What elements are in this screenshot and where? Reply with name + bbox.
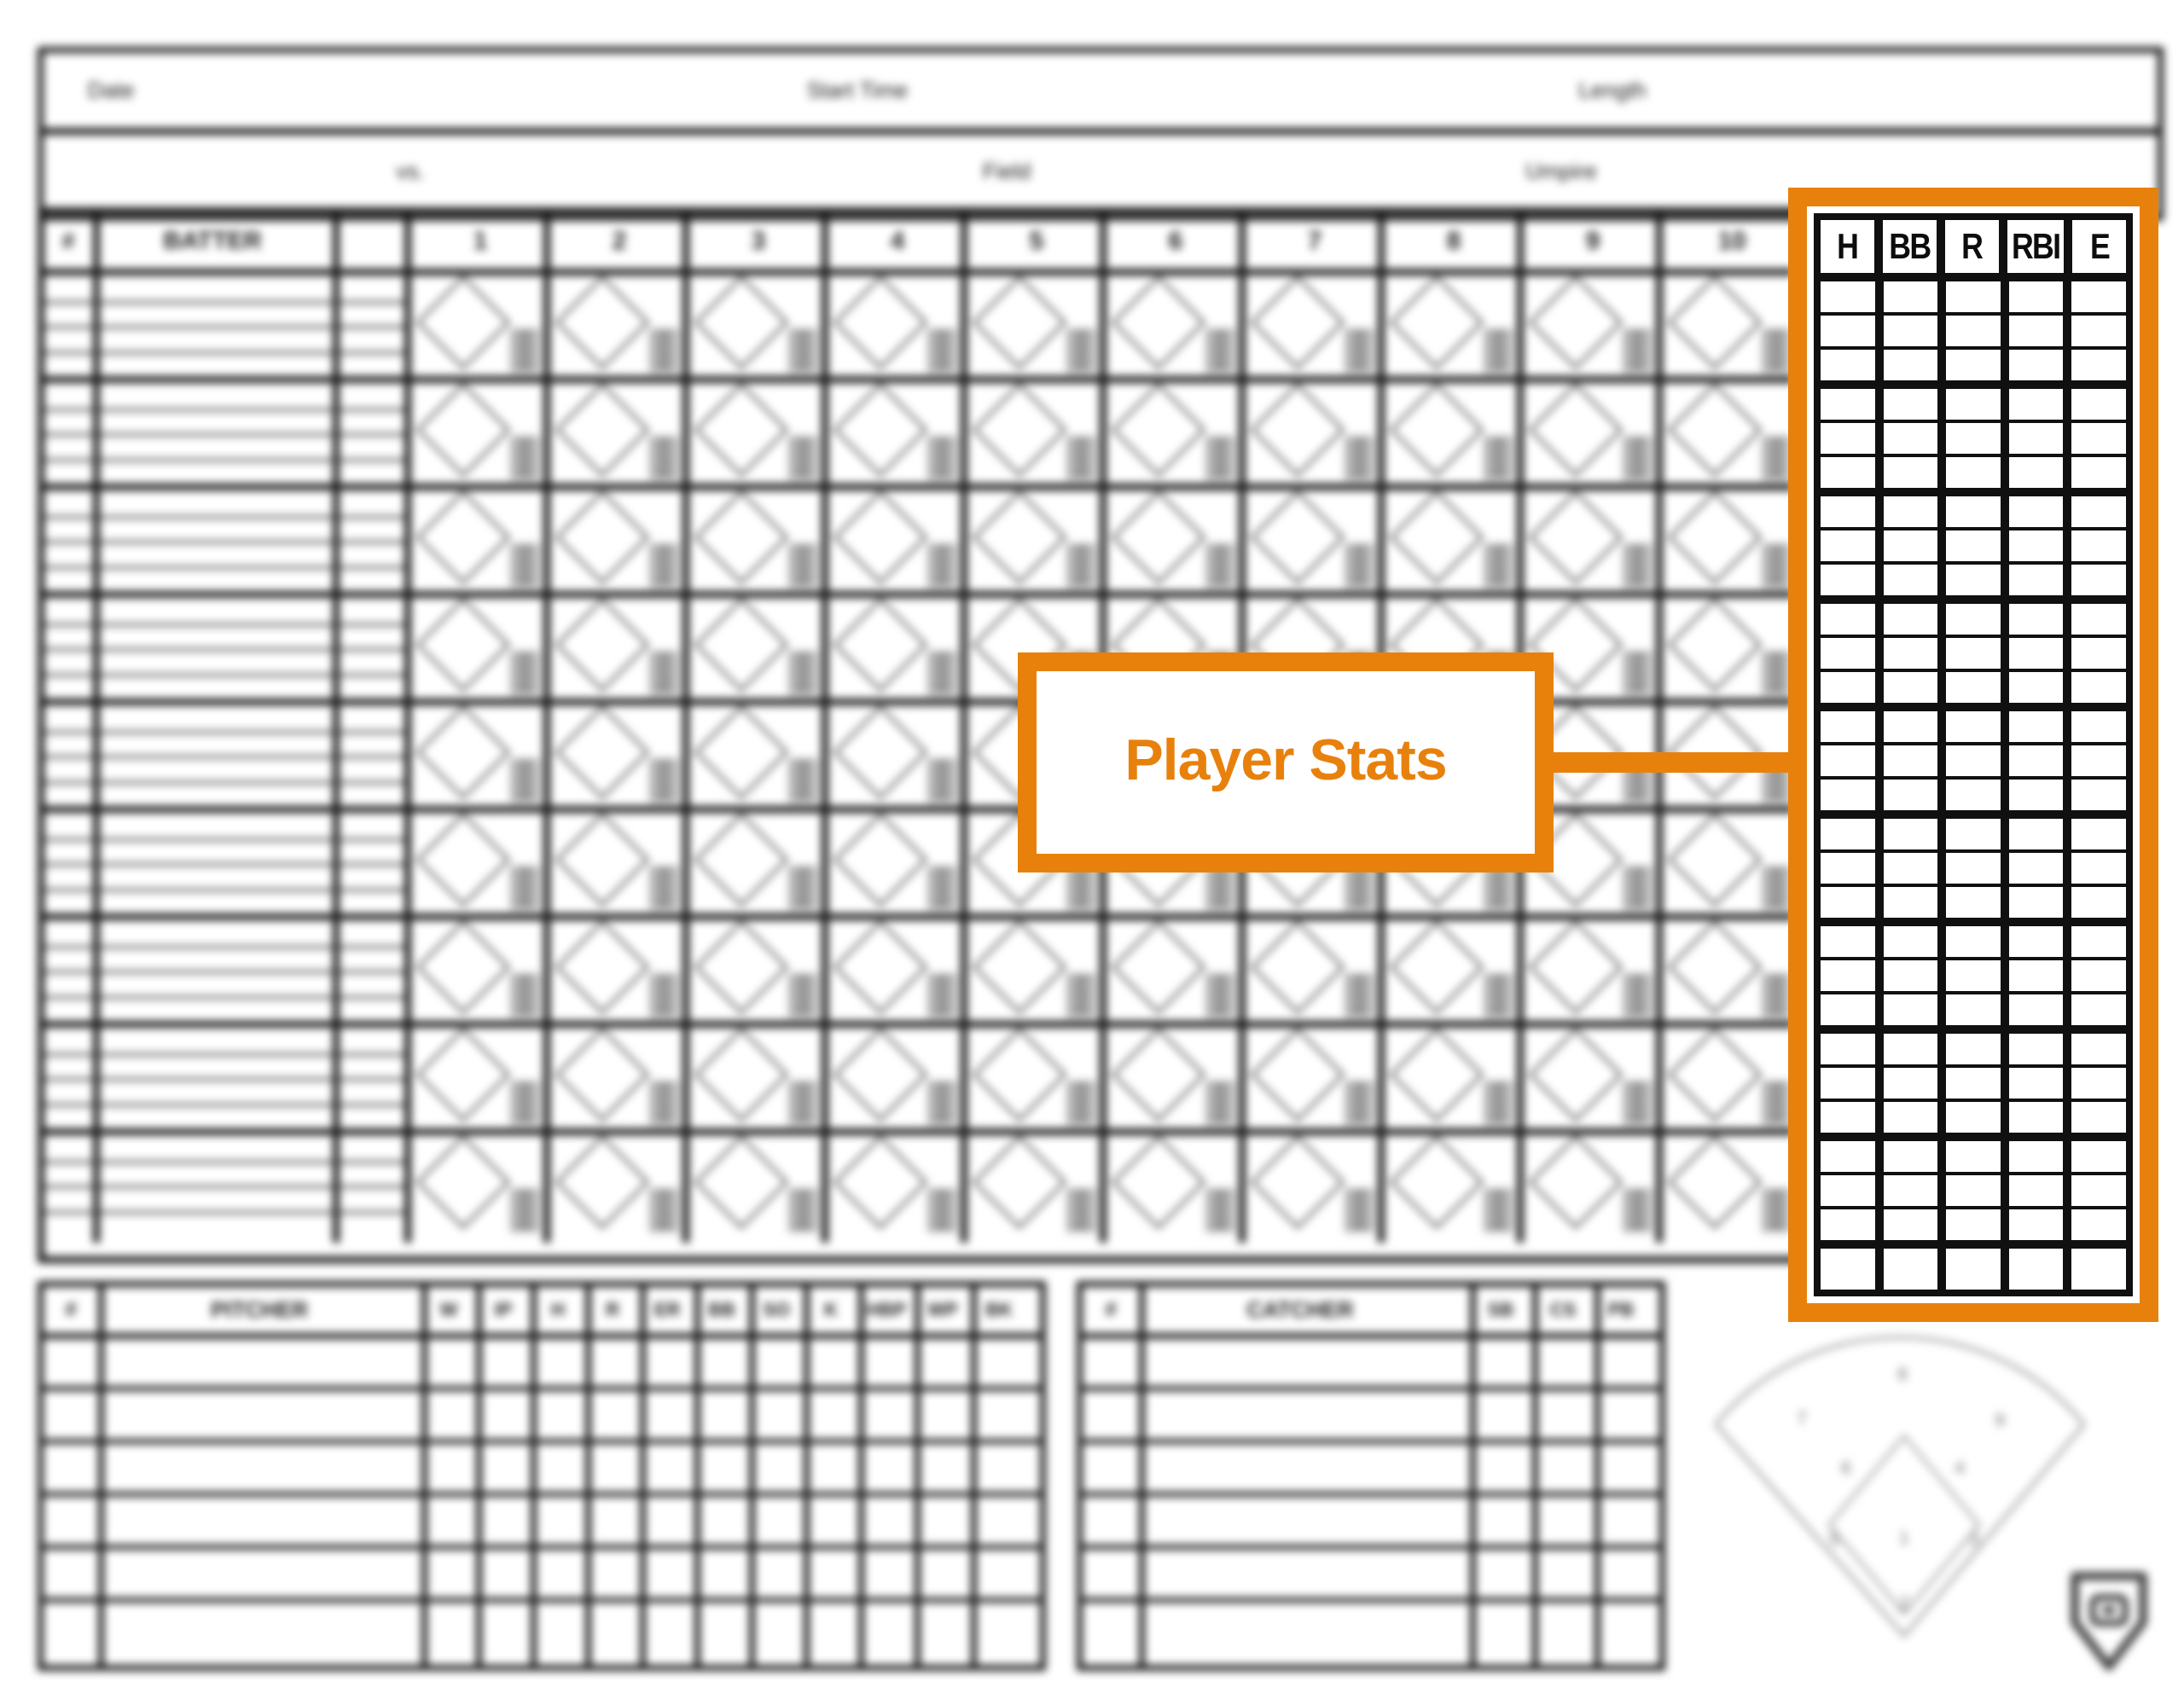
- stats-cell-BB: [1884, 565, 1938, 595]
- player-stats-panel: HBBRRBIE: [1807, 206, 2140, 1303]
- stats-row: [1821, 780, 2126, 810]
- stats-cell-E: [2071, 1249, 2126, 1290]
- stats-cell-BB: [1884, 672, 1938, 703]
- stats-row: [1821, 389, 2126, 420]
- stats-cell-E: [2071, 389, 2126, 420]
- stats-cell-BB: [1884, 711, 1938, 742]
- stats-cell-R: [1946, 604, 2001, 635]
- stats-cell-BB: [1884, 604, 1938, 635]
- stats-cell-H: [1821, 780, 1875, 810]
- stats-cell-RBI: [2009, 994, 2064, 1025]
- stats-cell-H: [1821, 819, 1875, 849]
- stats-row: [1821, 1209, 2126, 1240]
- stats-cell-R: [1946, 457, 2001, 488]
- callout-connector-line: [1548, 752, 1790, 773]
- stats-header-row: HBBRRBIE: [1821, 220, 2126, 273]
- stats-cell-H: [1821, 565, 1875, 595]
- stats-cell-BB: [1884, 960, 1938, 991]
- stats-cell-R: [1946, 672, 2001, 703]
- stats-cell-E: [2071, 994, 2126, 1025]
- stats-cell-H: [1821, 316, 1875, 346]
- stats-cell-R: [1946, 638, 2001, 669]
- stats-col-label: H: [1837, 226, 1857, 267]
- stats-cell-BB: [1884, 1034, 1938, 1064]
- stats-cell-H: [1821, 457, 1875, 488]
- stats-col-label: BB: [1889, 226, 1930, 267]
- stats-cell-BB: [1884, 1249, 1938, 1290]
- stats-cell-H: [1821, 711, 1875, 742]
- stats-cell-E: [2071, 1141, 2126, 1172]
- stats-cell-BB: [1884, 994, 1938, 1025]
- stats-cell-RBI: [2009, 672, 2064, 703]
- stats-cell-RBI: [2009, 926, 2064, 957]
- stats-cell-R: [1946, 1034, 2001, 1064]
- stats-header-BB: BB: [1883, 220, 1937, 273]
- stats-cell-E: [2071, 1209, 2126, 1240]
- stats-cell-R: [1946, 316, 2001, 346]
- stats-cell-BB: [1884, 530, 1938, 561]
- stats-cell-BB: [1884, 1141, 1938, 1172]
- stats-cell-RBI: [2009, 316, 2064, 346]
- stats-cell-RBI: [2009, 960, 2064, 991]
- stats-row: [1821, 423, 2126, 454]
- stats-row: [1821, 819, 2126, 849]
- stats-cell-BB: [1884, 745, 1938, 776]
- stats-cell-BB: [1884, 926, 1938, 957]
- stats-header-RBI: RBI: [2007, 220, 2064, 273]
- stats-cell-E: [2071, 745, 2126, 776]
- stats-row: [1821, 604, 2126, 635]
- stats-row: [1821, 1102, 2126, 1133]
- stats-header-R: R: [1945, 220, 1999, 273]
- stats-cell-R: [1946, 1209, 2001, 1240]
- stats-cell-H: [1821, 1068, 1875, 1099]
- stats-row: [1821, 853, 2126, 884]
- stats-cell-RBI: [2009, 745, 2064, 776]
- stats-cell-H: [1821, 281, 1875, 312]
- stats-cell-E: [2071, 1175, 2126, 1206]
- stats-header-H: H: [1821, 220, 1874, 273]
- stats-cell-E: [2071, 565, 2126, 595]
- stats-cell-RBI: [2009, 1209, 2064, 1240]
- stats-row: [1821, 672, 2126, 703]
- stats-cell-RBI: [2009, 711, 2064, 742]
- stats-cell-H: [1821, 496, 1875, 527]
- stats-cell-R: [1946, 1249, 2001, 1290]
- stats-cell-RBI: [2009, 638, 2064, 669]
- stats-cell-R: [1946, 530, 2001, 561]
- stats-cell-RBI: [2009, 1034, 2064, 1064]
- stats-cell-E: [2071, 423, 2126, 454]
- stats-cell-R: [1946, 1175, 2001, 1206]
- stats-cell-BB: [1884, 887, 1938, 918]
- stats-cell-RBI: [2009, 887, 2064, 918]
- stats-cell-R: [1946, 1141, 2001, 1172]
- stats-row: [1821, 316, 2126, 346]
- stats-cell-H: [1821, 1141, 1875, 1172]
- stats-cell-R: [1946, 350, 2001, 380]
- stats-cell-E: [2071, 711, 2126, 742]
- stats-cell-H: [1821, 994, 1875, 1025]
- stats-cell-R: [1946, 389, 2001, 420]
- stats-cell-RBI: [2009, 780, 2064, 810]
- stats-row: [1821, 350, 2126, 380]
- stats-cell-BB: [1884, 316, 1938, 346]
- stats-cell-RBI: [2009, 853, 2064, 884]
- stats-cell-BB: [1884, 457, 1938, 488]
- stats-cell-BB: [1884, 281, 1938, 312]
- stats-row: [1821, 711, 2126, 742]
- stats-cell-RBI: [2009, 565, 2064, 595]
- stats-cell-H: [1821, 1249, 1875, 1290]
- stats-row: [1821, 1068, 2126, 1099]
- stats-cell-BB: [1884, 1175, 1938, 1206]
- stats-cell-E: [2071, 638, 2126, 669]
- stats-cell-BB: [1884, 638, 1938, 669]
- stats-cell-E: [2071, 780, 2126, 810]
- stats-cell-R: [1946, 960, 2001, 991]
- stats-cell-H: [1821, 1209, 1875, 1240]
- stats-cell-RBI: [2009, 457, 2064, 488]
- stats-cell-E: [2071, 350, 2126, 380]
- stats-cell-H: [1821, 1175, 1875, 1206]
- stats-cell-E: [2071, 887, 2126, 918]
- stats-cell-H: [1821, 389, 1875, 420]
- stats-cell-E: [2071, 853, 2126, 884]
- stats-col-label: R: [1961, 226, 1982, 267]
- stats-cell-H: [1821, 960, 1875, 991]
- annotation-overlay: HBBRRBIE Player Stats: [0, 0, 2184, 1687]
- stats-cell-E: [2071, 496, 2126, 527]
- stats-row: [1821, 638, 2126, 669]
- stats-cell-R: [1946, 1068, 2001, 1099]
- stats-cell-R: [1946, 887, 2001, 918]
- stats-row: [1821, 1141, 2126, 1172]
- stats-cell-BB: [1884, 496, 1938, 527]
- stats-cell-H: [1821, 350, 1875, 380]
- stats-cell-R: [1946, 565, 2001, 595]
- stats-cell-BB: [1884, 1209, 1938, 1240]
- stats-cell-E: [2071, 1068, 2126, 1099]
- stats-cell-H: [1821, 638, 1875, 669]
- stats-cell-E: [2071, 1102, 2126, 1133]
- stats-cell-E: [2071, 604, 2126, 635]
- stats-cell-BB: [1884, 819, 1938, 849]
- stats-cell-H: [1821, 745, 1875, 776]
- stats-row: [1821, 565, 2126, 595]
- stats-cell-E: [2071, 1034, 2126, 1064]
- stats-totals-row: [1821, 1249, 2126, 1290]
- stats-cell-R: [1946, 496, 2001, 527]
- stats-row: [1821, 1175, 2126, 1206]
- stats-cell-BB: [1884, 1068, 1938, 1099]
- stats-row: [1821, 1034, 2126, 1064]
- stats-row: [1821, 745, 2126, 776]
- player-stats-callout: Player Stats: [1018, 652, 1554, 872]
- stats-cell-E: [2071, 457, 2126, 488]
- stats-cell-H: [1821, 604, 1875, 635]
- stats-cell-H: [1821, 530, 1875, 561]
- stats-cell-RBI: [2009, 423, 2064, 454]
- player-stats-table: HBBRRBIE: [1814, 213, 2133, 1296]
- stats-cell-RBI: [2009, 530, 2064, 561]
- stats-cell-R: [1946, 994, 2001, 1025]
- stats-cell-R: [1946, 281, 2001, 312]
- stats-cell-H: [1821, 423, 1875, 454]
- stats-cell-H: [1821, 926, 1875, 957]
- scoresheet-page: Date Start Time Length vs. Field Umpire …: [0, 0, 2184, 1687]
- stats-cell-H: [1821, 672, 1875, 703]
- stats-row: [1821, 457, 2126, 488]
- stats-cell-RBI: [2009, 1249, 2064, 1290]
- stats-cell-RBI: [2009, 1141, 2064, 1172]
- stats-cell-E: [2071, 530, 2126, 561]
- stats-cell-BB: [1884, 389, 1938, 420]
- player-stats-highlight-frame: HBBRRBIE: [1788, 188, 2158, 1322]
- stats-cell-RBI: [2009, 819, 2064, 849]
- stats-cell-E: [2071, 960, 2126, 991]
- stats-cell-R: [1946, 423, 2001, 454]
- stats-cell-RBI: [2009, 604, 2064, 635]
- stats-cell-E: [2071, 926, 2126, 957]
- stats-cell-E: [2071, 316, 2126, 346]
- stats-cell-E: [2071, 819, 2126, 849]
- stats-col-label: E: [2090, 226, 2109, 267]
- stats-cell-R: [1946, 711, 2001, 742]
- stats-cell-R: [1946, 853, 2001, 884]
- stats-cell-R: [1946, 926, 2001, 957]
- player-stats-callout-label: Player Stats: [1124, 727, 1446, 798]
- stats-header-E: E: [2072, 220, 2126, 273]
- stats-row: [1821, 926, 2126, 957]
- stats-row: [1821, 887, 2126, 918]
- stats-row: [1821, 496, 2126, 527]
- stats-cell-H: [1821, 887, 1875, 918]
- stats-cell-R: [1946, 745, 2001, 776]
- stats-cell-RBI: [2009, 496, 2064, 527]
- stats-cell-RBI: [2009, 281, 2064, 312]
- stats-cell-RBI: [2009, 1175, 2064, 1206]
- stats-cell-BB: [1884, 853, 1938, 884]
- stats-cell-RBI: [2009, 1068, 2064, 1099]
- stats-cell-BB: [1884, 350, 1938, 380]
- stats-cell-BB: [1884, 423, 1938, 454]
- stats-cell-E: [2071, 672, 2126, 703]
- stats-cell-H: [1821, 853, 1875, 884]
- stats-cell-RBI: [2009, 1102, 2064, 1133]
- stats-cell-H: [1821, 1102, 1875, 1133]
- stats-row: [1821, 994, 2126, 1025]
- stats-cell-R: [1946, 780, 2001, 810]
- stats-cell-BB: [1884, 780, 1938, 810]
- stats-row: [1821, 960, 2126, 991]
- stats-cell-H: [1821, 1034, 1875, 1064]
- stats-cell-E: [2071, 281, 2126, 312]
- stats-row: [1821, 530, 2126, 561]
- stats-cell-R: [1946, 819, 2001, 849]
- stats-cell-RBI: [2009, 389, 2064, 420]
- stats-cell-BB: [1884, 1102, 1938, 1133]
- stats-cell-RBI: [2009, 350, 2064, 380]
- stats-cell-R: [1946, 1102, 2001, 1133]
- stats-row: [1821, 281, 2126, 312]
- stats-col-label: RBI: [2012, 226, 2059, 267]
